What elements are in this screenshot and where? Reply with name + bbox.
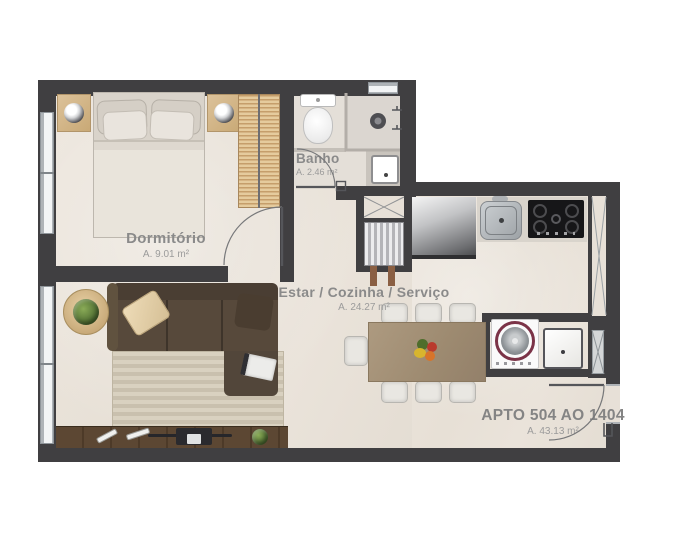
wall-bedroom-south bbox=[38, 266, 228, 282]
heater-leg-left bbox=[370, 266, 377, 286]
bed-pillow-front-left bbox=[102, 110, 147, 141]
shower-floor bbox=[346, 96, 400, 151]
floor-plan: Dormitório A. 9.01 m² Banho A. 2.46 m² E… bbox=[0, 0, 689, 551]
wardrobe-rod bbox=[258, 94, 260, 208]
bedroom-label: Dormitório bbox=[96, 230, 236, 247]
bathroom-label: Banho bbox=[296, 151, 356, 166]
fruit-bowl bbox=[414, 339, 440, 365]
laundry-tub-drain bbox=[561, 350, 565, 354]
side-table-plant bbox=[73, 299, 99, 325]
cooktop-knobs bbox=[537, 232, 575, 235]
washer-drum-center bbox=[512, 338, 518, 344]
burner-1 bbox=[533, 204, 547, 218]
living-window bbox=[40, 286, 54, 444]
fruit-orange bbox=[425, 351, 435, 361]
wall-bathroom-right bbox=[400, 80, 416, 196]
dining-chair-bottom-2 bbox=[415, 381, 442, 403]
living-label: Estar / Cozinha / Serviço bbox=[264, 284, 464, 300]
kitchen-sink-drain bbox=[499, 218, 504, 223]
bathroom-area: A. 2.46 m² bbox=[296, 167, 366, 177]
burner-2 bbox=[565, 204, 579, 218]
tv-base bbox=[187, 434, 201, 444]
apartment-area: A. 43.13 m² bbox=[448, 426, 658, 437]
sofa-seam-2 bbox=[221, 300, 223, 351]
living-window-mullion bbox=[40, 363, 54, 365]
sofa-armrest bbox=[107, 283, 118, 351]
toilet-bowl bbox=[303, 107, 333, 144]
bedroom-area: A. 9.01 m² bbox=[96, 249, 236, 260]
lamp-left bbox=[64, 103, 84, 123]
apartment-label: APTO 504 AO 1404 bbox=[448, 407, 658, 425]
shaft-box-right bbox=[592, 330, 604, 374]
living-area: A. 24.27 m² bbox=[264, 302, 464, 313]
wall-laundry-bottom bbox=[482, 369, 606, 377]
shaft-strip-right bbox=[592, 196, 606, 316]
wall-kitchen-top bbox=[400, 182, 620, 196]
wall-bedroom-east bbox=[280, 80, 294, 282]
bathroom-window bbox=[368, 82, 398, 94]
laundry-tub bbox=[543, 328, 583, 369]
bathroom-sink-drain bbox=[384, 173, 388, 177]
toilet-tank-button bbox=[316, 98, 320, 102]
heater-leg-right bbox=[388, 266, 395, 286]
burner-center bbox=[551, 214, 561, 224]
dining-chair-bottom-3 bbox=[449, 381, 476, 403]
dining-chair-bottom-1 bbox=[381, 381, 408, 403]
bed-pillow-front-right bbox=[149, 110, 194, 141]
bathroom-sink-basin bbox=[371, 155, 399, 184]
refrigerator bbox=[412, 197, 476, 259]
console-plant bbox=[252, 429, 268, 445]
lamp-right bbox=[214, 103, 234, 123]
shaft-box-hall bbox=[364, 196, 404, 218]
water-heater bbox=[364, 222, 404, 266]
wall-bottom bbox=[38, 448, 620, 462]
dining-chair-left bbox=[344, 336, 368, 366]
bedroom-window-mullion bbox=[40, 172, 54, 174]
bed-duvet bbox=[94, 140, 204, 237]
washer-panel bbox=[496, 362, 534, 365]
